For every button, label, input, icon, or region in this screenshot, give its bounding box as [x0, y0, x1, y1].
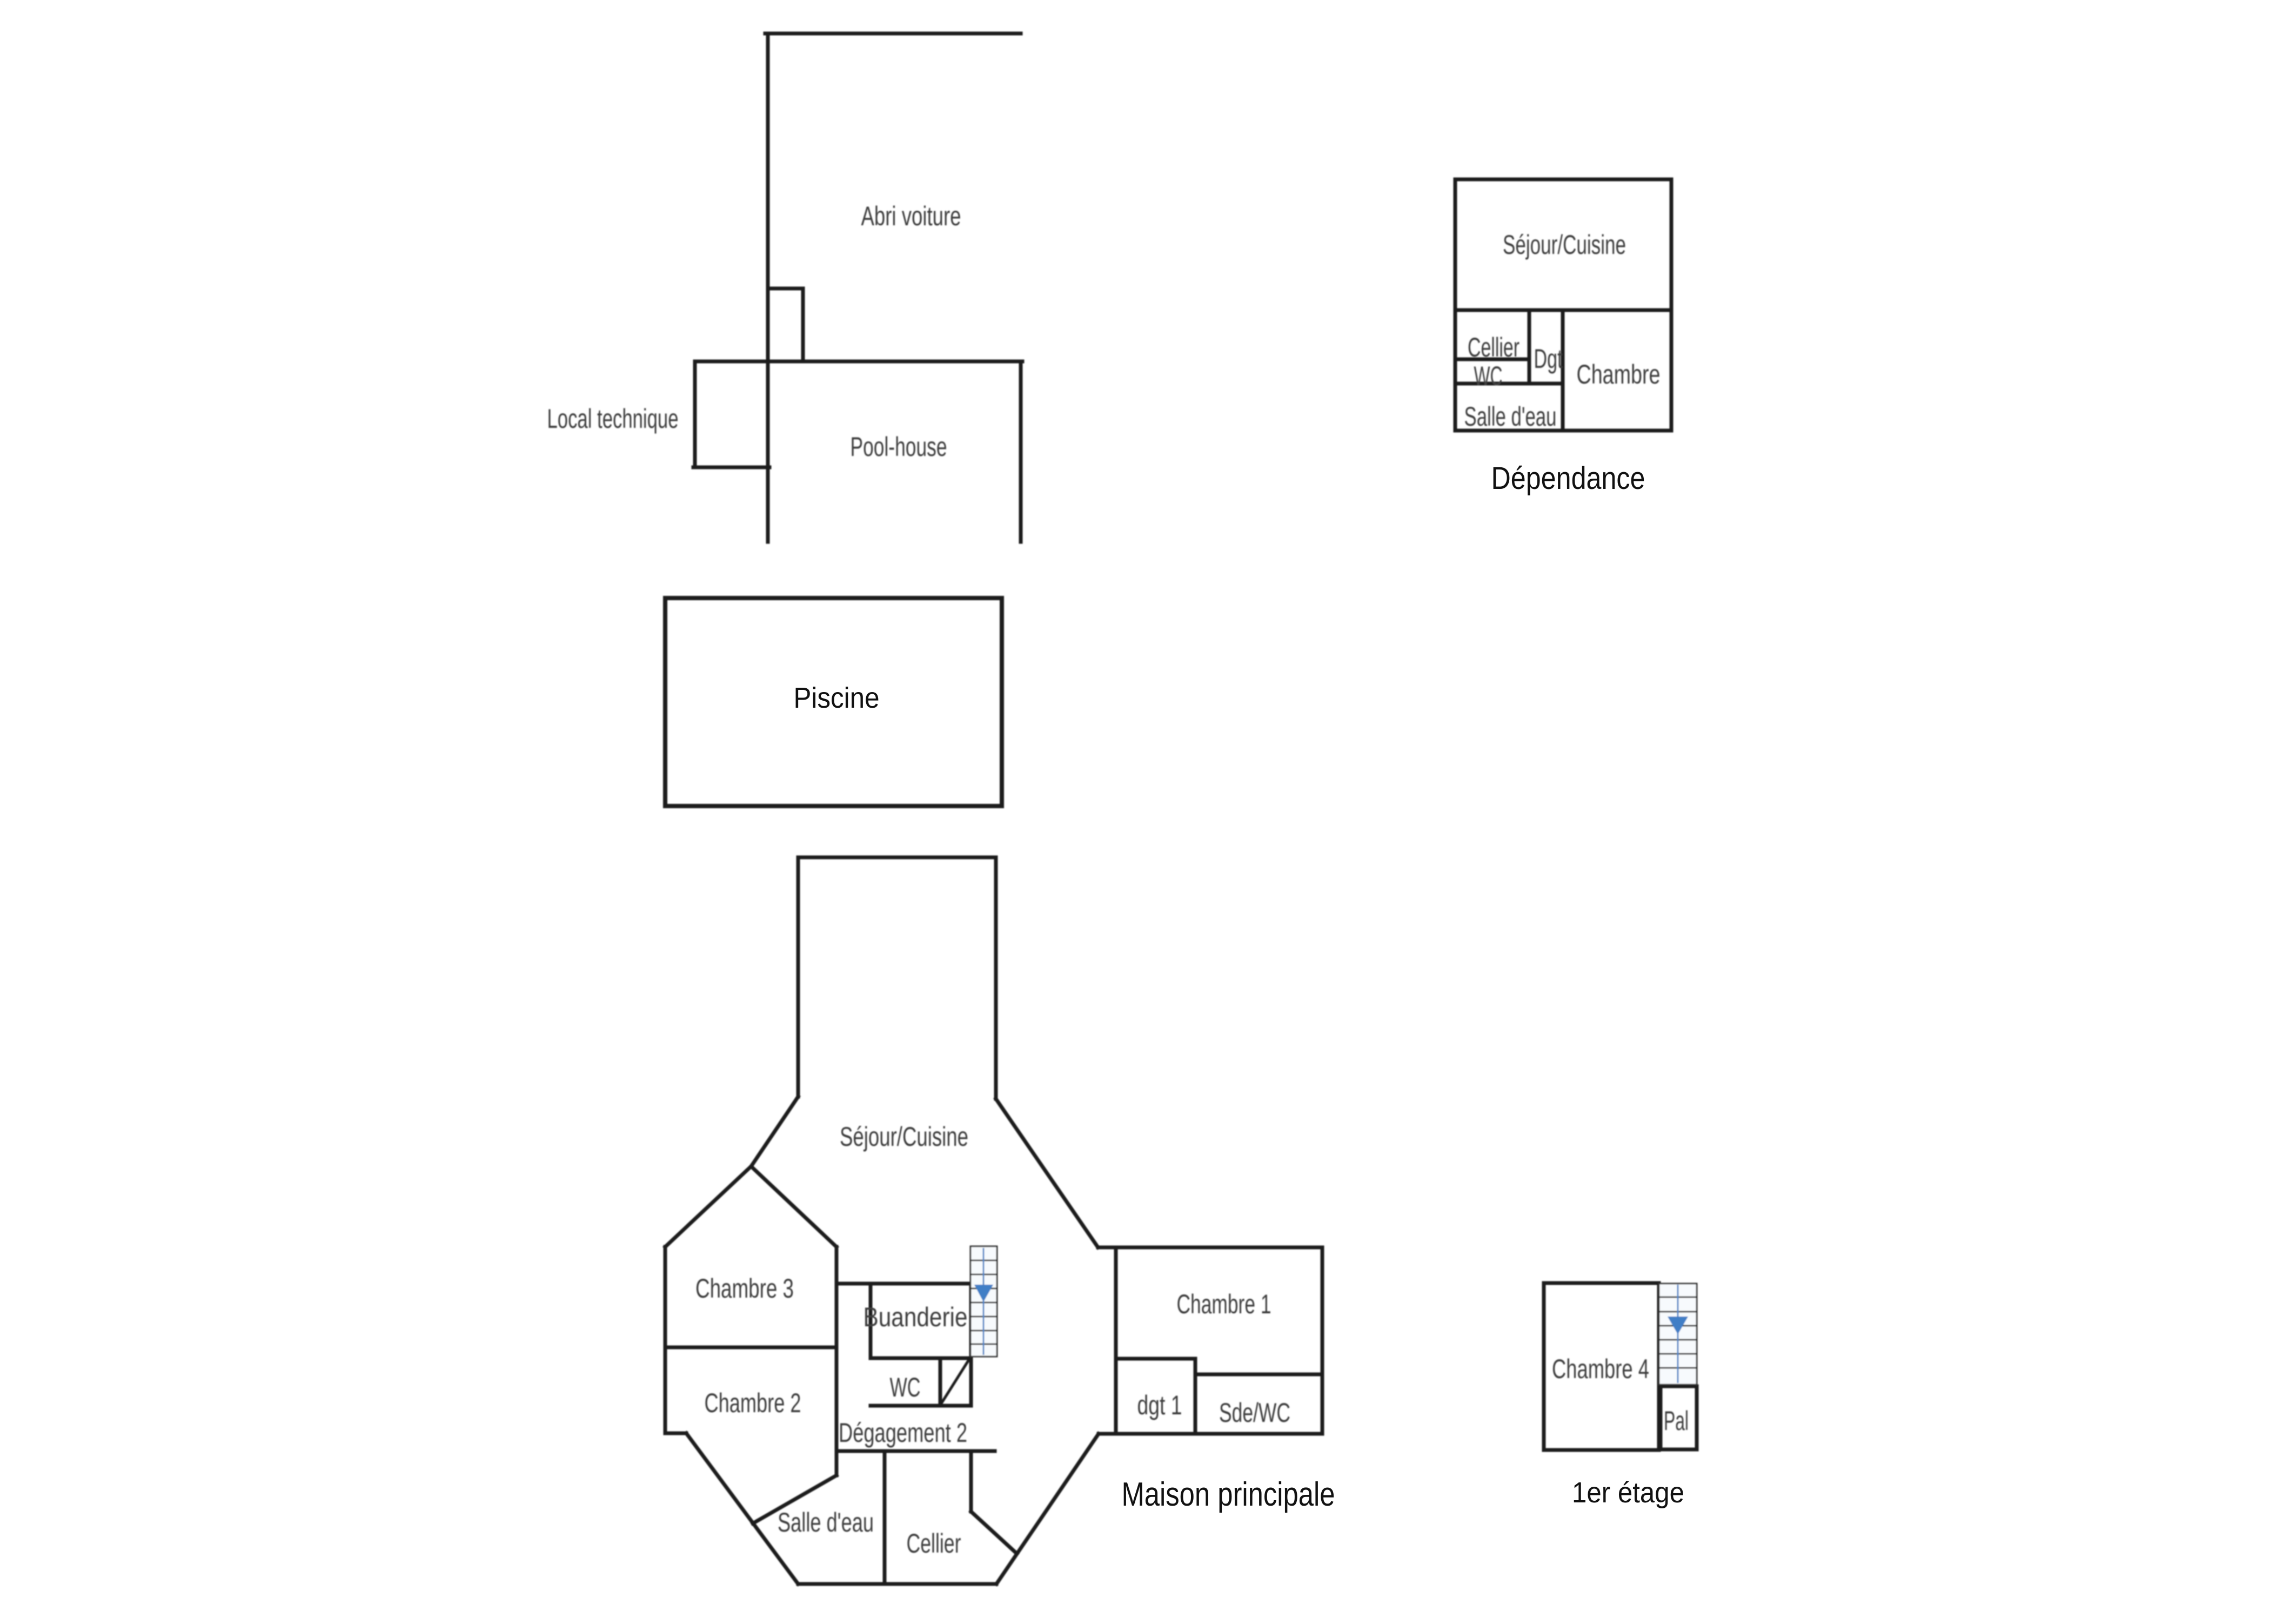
svg-text:Salle d'eau: Salle d'eau	[778, 1507, 874, 1538]
svg-text:Cellier: Cellier	[907, 1528, 961, 1559]
svg-text:Séjour/Cuisine: Séjour/Cuisine	[840, 1122, 968, 1152]
svg-text:Piscine: Piscine	[794, 682, 880, 714]
svg-text:Chambre 3: Chambre 3	[695, 1273, 794, 1304]
svg-text:WC: WC	[890, 1372, 921, 1402]
svg-text:Salle d'eau: Salle d'eau	[1464, 401, 1557, 432]
svg-text:Buanderie: Buanderie	[863, 1302, 968, 1332]
svg-text:Maison principale: Maison principale	[1122, 1476, 1335, 1513]
svg-text:Chambre 1: Chambre 1	[1177, 1289, 1271, 1319]
svg-text:dgt 1: dgt 1	[1137, 1390, 1182, 1420]
svg-text:Cellier: Cellier	[1468, 332, 1519, 362]
svg-text:Chambre 4: Chambre 4	[1552, 1354, 1649, 1384]
svg-text:Dépendance: Dépendance	[1491, 461, 1645, 496]
svg-text:WC: WC	[1474, 361, 1503, 391]
svg-text:Chambre: Chambre	[1577, 359, 1661, 390]
svg-text:Abri voiture: Abri voiture	[861, 201, 961, 231]
svg-text:Sde/WC: Sde/WC	[1219, 1398, 1290, 1428]
svg-text:Pal: Pal	[1664, 1406, 1689, 1436]
svg-text:Local technique: Local technique	[547, 404, 679, 434]
svg-text:Pool-house: Pool-house	[851, 432, 947, 462]
svg-text:Chambre 2: Chambre 2	[705, 1388, 801, 1418]
svg-text:Séjour/Cuisine: Séjour/Cuisine	[1503, 230, 1626, 260]
svg-text:Dgt: Dgt	[1534, 344, 1563, 374]
svg-text:1er étage: 1er étage	[1572, 1476, 1684, 1509]
svg-text:Dégagement 2: Dégagement 2	[839, 1418, 967, 1448]
